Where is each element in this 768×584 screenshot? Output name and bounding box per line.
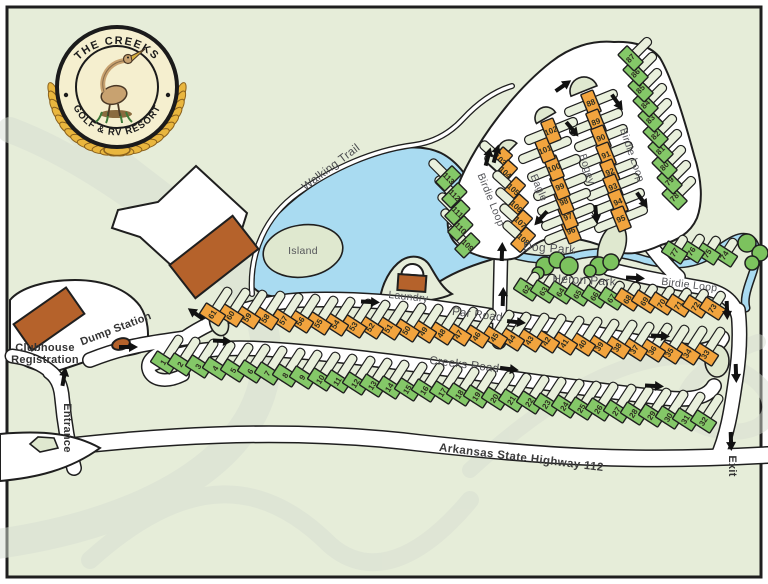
ring-dot-right	[166, 93, 170, 97]
label-clubhouse-line1: Clubhouse	[15, 342, 75, 354]
resort-map: 1234567891011121314151617181920212223242…	[0, 0, 768, 584]
resort-map-page: 1234567891011121314151617181920212223242…	[0, 0, 768, 584]
label-clubhouse-line2: Registration	[11, 354, 79, 366]
label-entrance: Entrance	[61, 403, 73, 452]
ring-dot-left	[64, 93, 68, 97]
label-island: Island	[288, 245, 318, 257]
label-exit: Exit	[726, 455, 738, 476]
